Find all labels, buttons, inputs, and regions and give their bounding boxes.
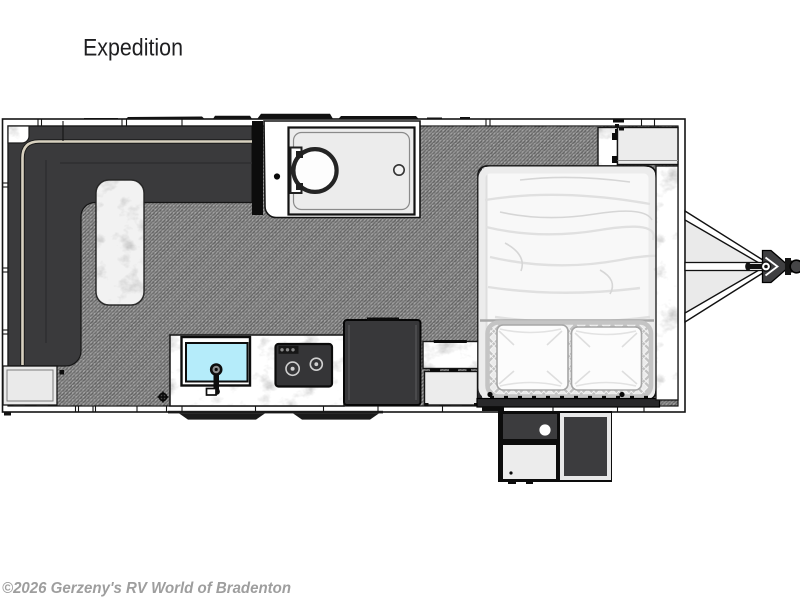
svg-text:©2026 Gerzeny's RV World of Br: ©2026 Gerzeny's RV World of Bradenton: [2, 580, 291, 597]
svg-text:Expedition: Expedition: [83, 35, 183, 62]
